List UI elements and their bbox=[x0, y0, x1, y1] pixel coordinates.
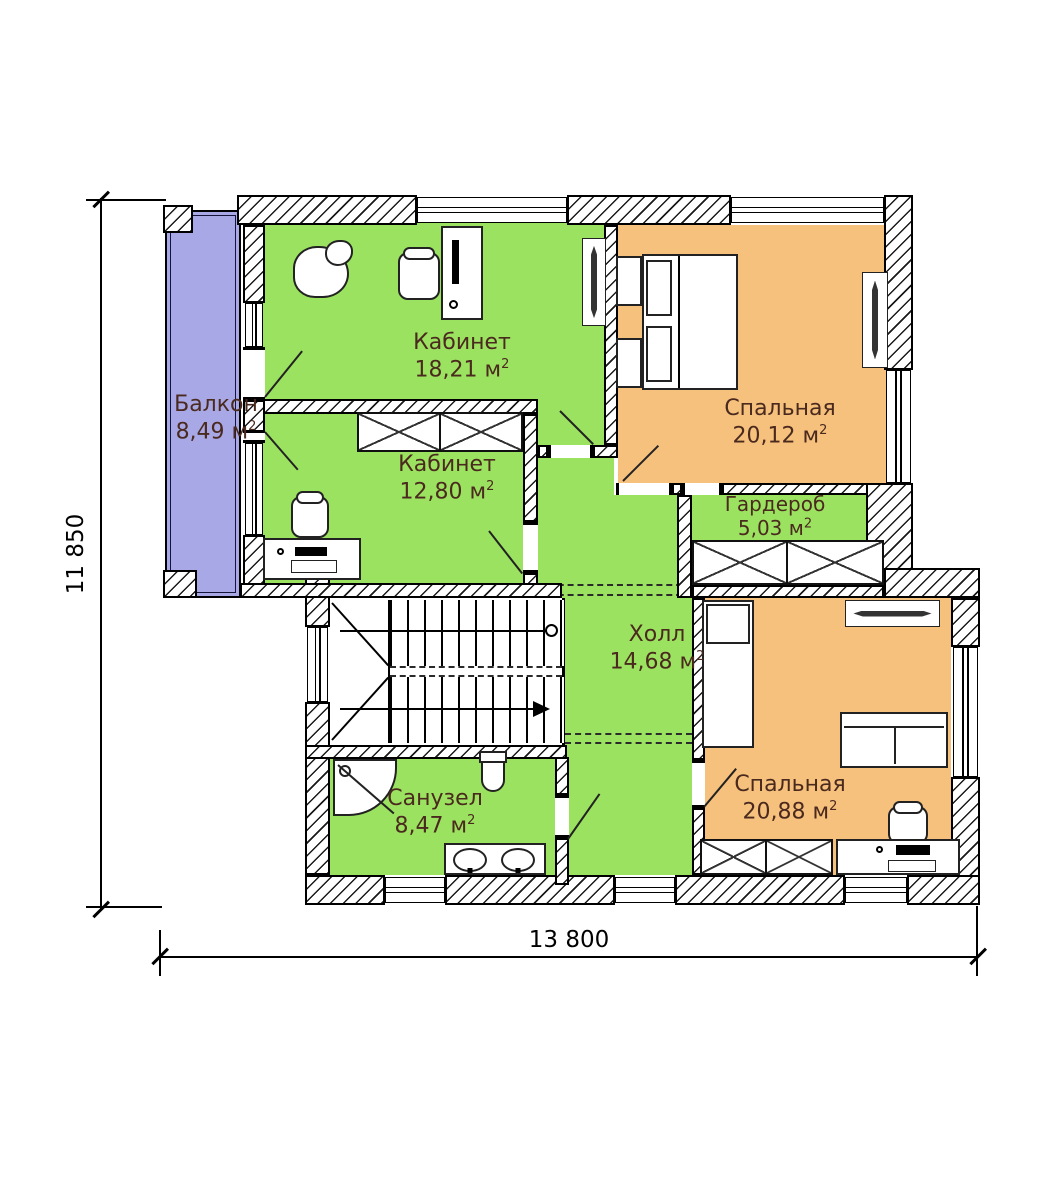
stairs-direction-arrow bbox=[533, 701, 550, 717]
sofa-icon bbox=[840, 712, 948, 768]
stairs-cut-line bbox=[390, 666, 562, 668]
balcony-corner-block-top bbox=[163, 205, 193, 233]
door-opening bbox=[692, 760, 705, 808]
wall-right-upper bbox=[884, 195, 913, 370]
radiator-icon bbox=[582, 238, 606, 326]
stairs-start-circle bbox=[545, 624, 558, 637]
dimension-label-height: 11 850 bbox=[63, 514, 89, 594]
radiator-icon bbox=[862, 272, 888, 368]
wall-office1-south-2 bbox=[593, 445, 618, 458]
pillow-icon bbox=[646, 260, 672, 316]
room-area: 5,03 м2 bbox=[725, 516, 826, 540]
extension-line bbox=[976, 906, 978, 976]
window bbox=[953, 647, 978, 777]
balcony-corner-block-bottom bbox=[163, 570, 197, 598]
wall-bottom-3 bbox=[675, 875, 845, 905]
wardrobe-icon bbox=[700, 839, 767, 875]
room-name: Гардероб bbox=[725, 492, 826, 516]
wall-wardrobe-south bbox=[692, 585, 884, 598]
toilet-icon bbox=[481, 761, 505, 792]
door-opening bbox=[682, 483, 722, 495]
stairs-landing bbox=[332, 600, 390, 743]
wall-office2-east-1 bbox=[523, 414, 538, 522]
room-hall-upper-west bbox=[538, 455, 614, 598]
room-label-bedroom-2: Спальная 20,88 м2 bbox=[734, 772, 845, 826]
room-name: Спальная bbox=[724, 396, 835, 423]
room-label-office-2: Кабинет 12,80 м2 bbox=[398, 452, 496, 506]
wall-top-1 bbox=[237, 195, 417, 225]
stairs-icon bbox=[330, 598, 565, 745]
desk-icon bbox=[263, 538, 361, 580]
mouse-icon bbox=[277, 548, 284, 555]
wall-bottom-2 bbox=[445, 875, 615, 905]
stairs-flight-up bbox=[390, 600, 564, 666]
room-area: 8,47 м2 bbox=[387, 813, 483, 840]
room-name: Холл bbox=[610, 622, 705, 649]
mouse-icon bbox=[876, 846, 883, 853]
sink-icon bbox=[453, 848, 487, 872]
wall-top-2 bbox=[567, 195, 731, 225]
room-name: Кабинет bbox=[413, 330, 511, 357]
nightstand-icon bbox=[616, 256, 642, 306]
wall-bottom-4 bbox=[907, 875, 980, 905]
stairs-cut-line bbox=[390, 675, 562, 677]
dimension-label-width: 13 800 bbox=[529, 927, 609, 953]
stairs-center-line-up bbox=[340, 630, 550, 632]
window bbox=[385, 877, 445, 903]
wall-office1-south-1 bbox=[538, 445, 548, 458]
dimension-line-vertical bbox=[100, 198, 102, 910]
room-area: 14,68 м2 bbox=[610, 649, 705, 676]
plant-icon bbox=[293, 246, 349, 298]
floor-plan: Балкон 8,49 м2 Кабинет 18,21 м2 Спальная… bbox=[0, 0, 1063, 1182]
wall-stairs-south bbox=[305, 745, 567, 759]
monitor-icon bbox=[295, 547, 327, 556]
window bbox=[245, 303, 263, 347]
room-label-bathroom: Санузел 8,47 м2 bbox=[387, 786, 483, 840]
wall-step bbox=[884, 568, 980, 598]
dimension-line-horizontal bbox=[160, 956, 978, 958]
room-label-bedroom-1: Спальная 20,12 м2 bbox=[724, 396, 835, 450]
extension-line bbox=[159, 930, 161, 976]
mouse-icon bbox=[449, 300, 458, 309]
window bbox=[731, 197, 884, 223]
door-opening bbox=[555, 795, 569, 838]
room-name: Санузел bbox=[387, 786, 483, 813]
extension-line bbox=[86, 906, 162, 908]
wall-right-lower-1 bbox=[951, 598, 980, 647]
wall-stairs-north bbox=[240, 583, 562, 598]
extension-line bbox=[86, 199, 166, 201]
nightstand-icon bbox=[616, 338, 642, 388]
room-label-office-1: Кабинет 18,21 м2 bbox=[413, 330, 511, 384]
door-opening bbox=[523, 522, 538, 573]
shelf-icon bbox=[845, 600, 940, 627]
pillow-icon bbox=[706, 604, 750, 644]
pillow-icon bbox=[646, 326, 672, 382]
door-opening bbox=[548, 445, 593, 458]
wall-bathroom-east-2 bbox=[555, 838, 569, 885]
room-label-hall: Холл 14,68 м2 bbox=[610, 622, 705, 676]
room-name: Спальная bbox=[734, 772, 845, 799]
room-name: Балкон bbox=[174, 392, 258, 419]
wall-bathroom-east-1 bbox=[555, 757, 569, 795]
room-label-wardrobe: Гардероб 5,03 м2 bbox=[725, 492, 826, 541]
room-area: 18,21 м2 bbox=[413, 357, 511, 384]
monitor-icon bbox=[452, 240, 459, 284]
keyboard-icon bbox=[888, 860, 936, 872]
room-area: 20,88 м2 bbox=[734, 799, 845, 826]
wardrobe-icon bbox=[786, 540, 884, 585]
room-area: 20,12 м2 bbox=[724, 423, 835, 450]
wall-balcony-1 bbox=[243, 225, 265, 303]
dashed-line bbox=[565, 742, 692, 744]
desk-icon bbox=[441, 226, 483, 320]
blanket-line bbox=[678, 256, 680, 388]
room-area: 8,49 м2 bbox=[174, 419, 258, 446]
wall-left-lower-2 bbox=[305, 702, 330, 875]
wardrobe-icon bbox=[357, 412, 441, 452]
keyboard-icon bbox=[291, 560, 337, 573]
wall-bedroom1-south-1 bbox=[672, 483, 682, 495]
window bbox=[307, 627, 328, 702]
monitor-icon bbox=[896, 845, 930, 855]
wardrobe-icon bbox=[692, 540, 788, 585]
window bbox=[886, 370, 911, 483]
stairs-center-line-down bbox=[340, 708, 534, 710]
wall-bottom-1 bbox=[305, 875, 385, 905]
office-chair-icon bbox=[398, 252, 440, 300]
office-chair-icon bbox=[291, 496, 329, 538]
dashed-line bbox=[565, 733, 692, 735]
window bbox=[417, 197, 567, 223]
window bbox=[245, 443, 263, 535]
room-label-balcony: Балкон 8,49 м2 bbox=[174, 392, 258, 446]
wall-wardrobe-west bbox=[677, 495, 692, 598]
room-area: 12,80 м2 bbox=[398, 479, 496, 506]
room-name: Кабинет bbox=[398, 452, 496, 479]
window bbox=[615, 877, 675, 903]
door-opening bbox=[616, 483, 672, 495]
sink-icon bbox=[501, 848, 535, 872]
wardrobe-icon bbox=[439, 412, 523, 452]
window bbox=[845, 877, 907, 903]
vanity-icon bbox=[444, 843, 546, 875]
wardrobe-icon bbox=[765, 839, 833, 875]
